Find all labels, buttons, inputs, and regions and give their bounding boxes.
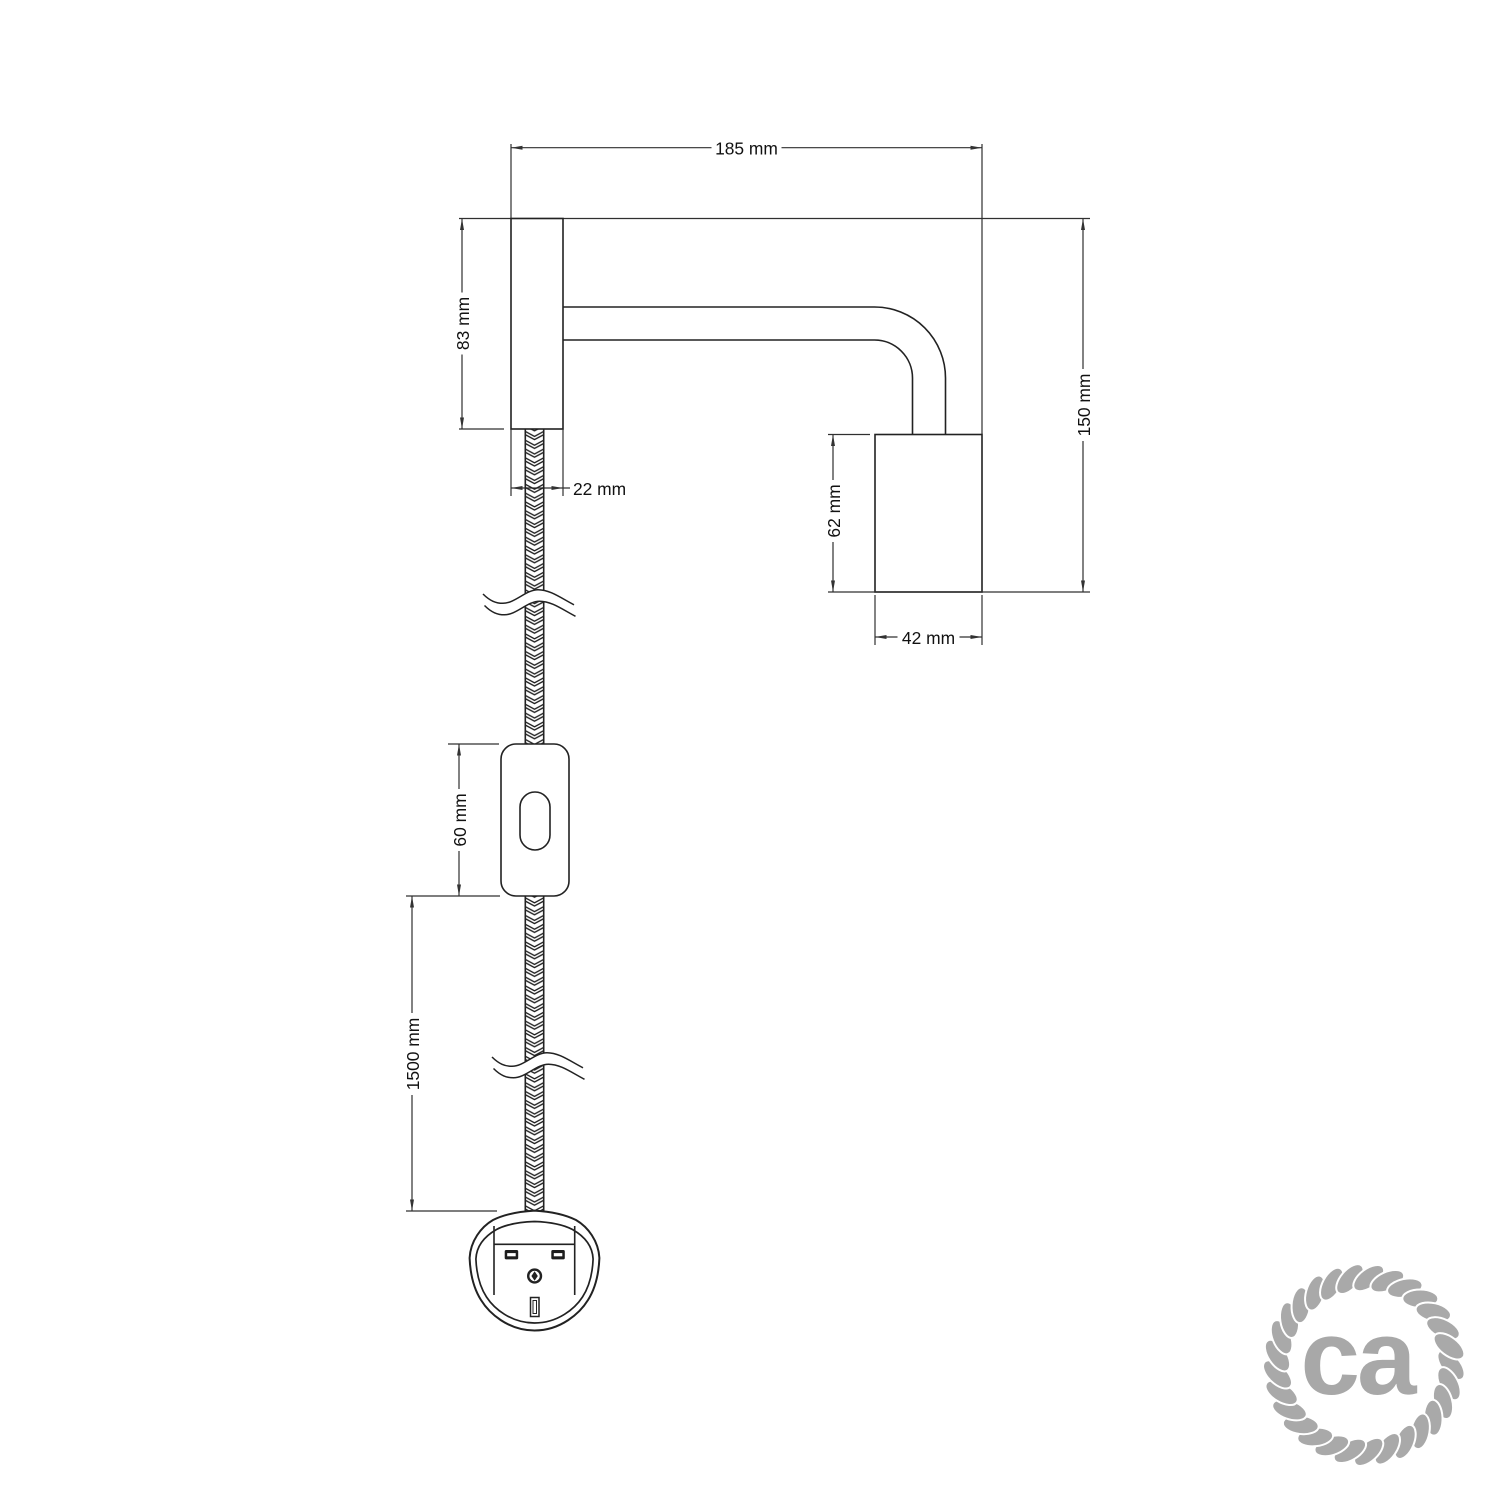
svg-text:22 mm: 22 mm — [573, 479, 626, 499]
svg-text:150 mm: 150 mm — [1074, 374, 1094, 437]
svg-text:83 mm: 83 mm — [453, 297, 473, 350]
svg-text:60 mm: 60 mm — [450, 793, 470, 846]
svg-text:1500 mm: 1500 mm — [403, 1018, 423, 1091]
svg-text:62 mm: 62 mm — [824, 484, 844, 537]
svg-text:185 mm: 185 mm — [715, 139, 778, 159]
svg-text:ca: ca — [1300, 1297, 1418, 1417]
svg-text:42 mm: 42 mm — [902, 628, 955, 648]
